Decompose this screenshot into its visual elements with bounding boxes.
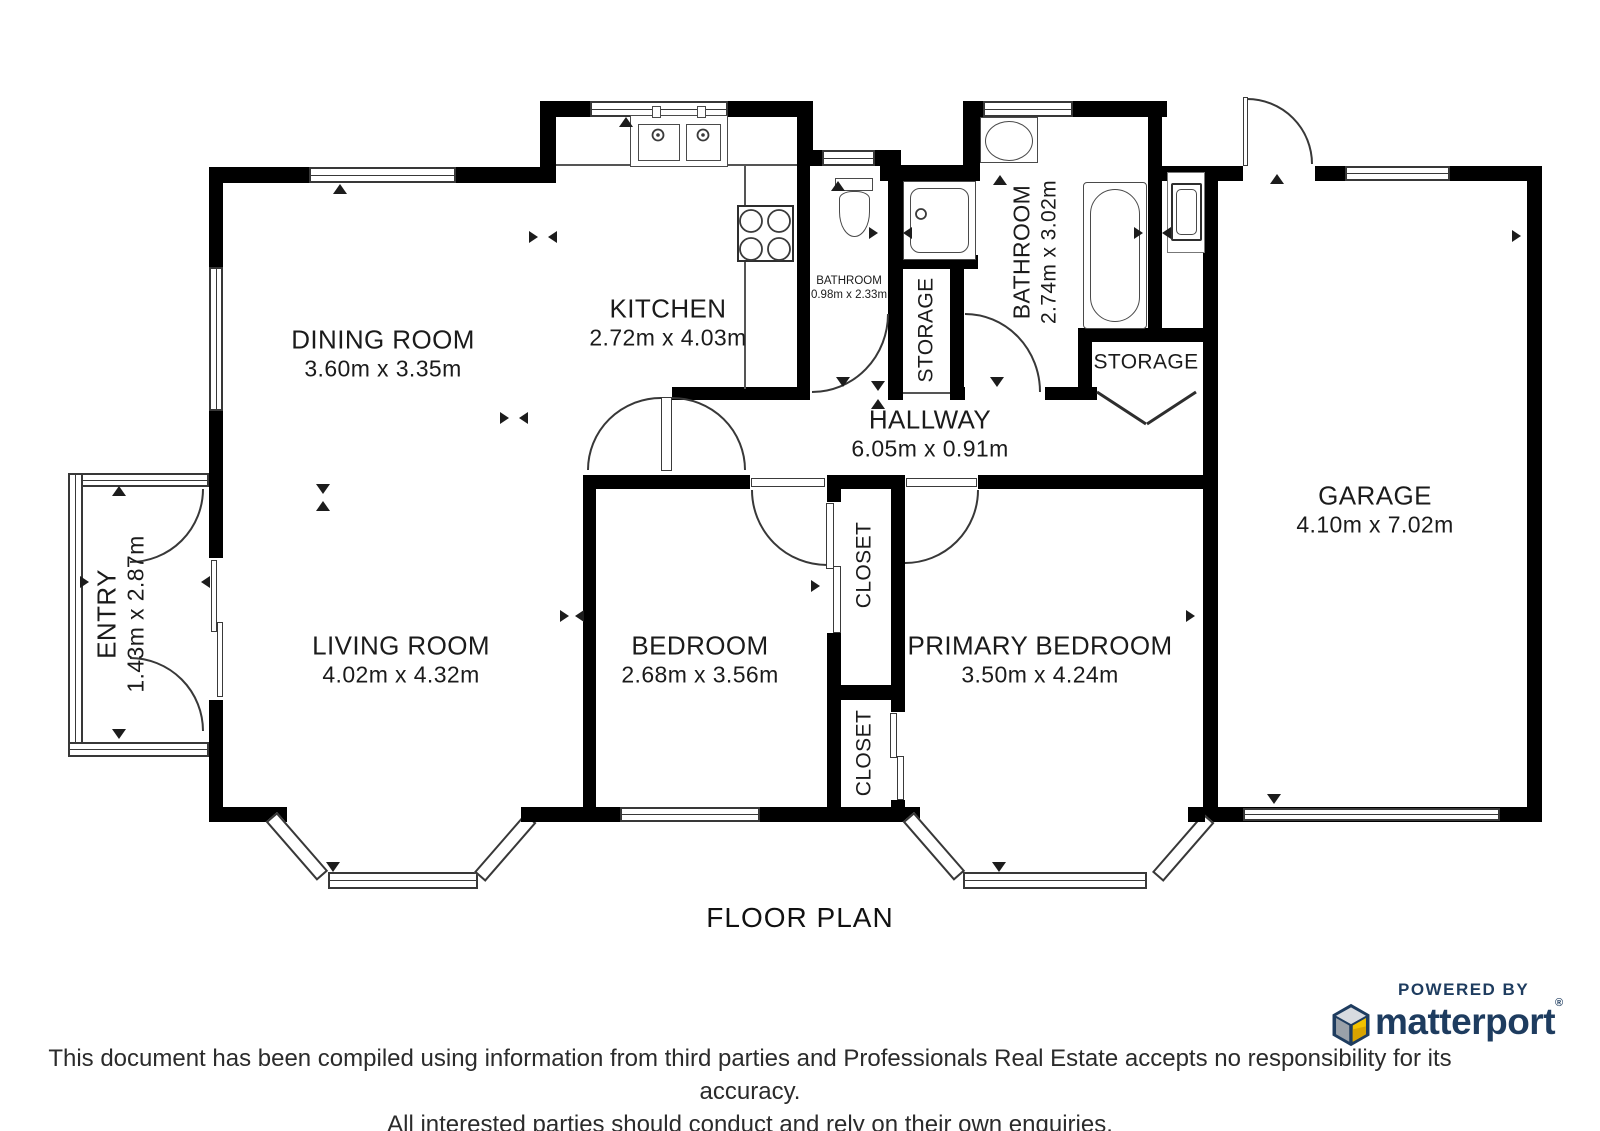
wall-segment bbox=[583, 475, 596, 807]
room-label-storage-1: STORAGE bbox=[913, 277, 938, 382]
wall-segment bbox=[1078, 328, 1092, 392]
door-leaf bbox=[661, 397, 672, 471]
marker-arrow bbox=[992, 862, 1006, 872]
marker-arrow bbox=[529, 231, 538, 243]
bathtub-inner bbox=[1090, 189, 1140, 322]
room-label-kitchen: KITCHEN 2.72m x 4.03m bbox=[589, 294, 746, 353]
room-label-bathroom-small: BATHROOM 0.98m x 2.33m bbox=[811, 275, 887, 303]
counter-edge bbox=[744, 166, 746, 389]
window bbox=[983, 101, 1073, 117]
marker-arrow bbox=[80, 576, 89, 588]
marker-arrow bbox=[326, 862, 340, 872]
door-arc bbox=[672, 398, 745, 470]
window bbox=[209, 267, 223, 411]
door-arc bbox=[905, 490, 978, 563]
wall-segment bbox=[209, 411, 223, 558]
wall-segment bbox=[583, 475, 1203, 489]
window bbox=[309, 167, 456, 183]
bay-window bbox=[903, 812, 965, 881]
marker-arrow bbox=[112, 486, 126, 496]
door-arc bbox=[1247, 99, 1312, 164]
marker-arrow bbox=[1267, 794, 1281, 804]
threshold-line bbox=[903, 392, 950, 394]
room-label-closet-1: CLOSET bbox=[851, 522, 876, 608]
entry-bay-window bbox=[68, 742, 209, 757]
marker-arrow bbox=[500, 412, 509, 424]
room-label-bedroom: BEDROOM 2.68m x 3.56m bbox=[621, 631, 778, 690]
wall-segment bbox=[888, 165, 903, 400]
window bbox=[1345, 166, 1450, 181]
marker-arrow bbox=[112, 729, 126, 739]
marker-arrow bbox=[619, 117, 633, 127]
appliance-inner bbox=[1176, 189, 1197, 235]
wall-segment bbox=[950, 268, 964, 400]
cooktop bbox=[737, 205, 794, 262]
wall-segment bbox=[1188, 807, 1205, 822]
garage-door bbox=[1243, 808, 1500, 821]
floor-plan: DINING ROOM 3.60m x 3.35m KITCHEN 2.72m … bbox=[0, 0, 1600, 1131]
bay-window bbox=[266, 812, 328, 881]
shower-tray bbox=[910, 188, 969, 253]
door-leaf bbox=[1243, 97, 1248, 166]
sink-basin bbox=[638, 124, 680, 161]
marker-arrow bbox=[1162, 227, 1171, 239]
door-arc bbox=[752, 490, 827, 565]
marker-arrow bbox=[1134, 227, 1143, 239]
wall-segment bbox=[209, 700, 223, 822]
marker-arrow bbox=[519, 412, 528, 424]
bay-window bbox=[963, 872, 1147, 889]
room-label-closet-2: CLOSET bbox=[851, 710, 876, 796]
door-opening bbox=[1097, 387, 1203, 400]
wall-segment bbox=[1148, 101, 1162, 342]
room-label-dining: DINING ROOM 3.60m x 3.35m bbox=[291, 325, 475, 384]
marker-arrow bbox=[575, 610, 584, 622]
marker-arrow bbox=[836, 377, 850, 387]
sliding-door-panel bbox=[890, 713, 897, 758]
wall-segment bbox=[1203, 166, 1218, 822]
window bbox=[620, 807, 760, 822]
door-arc bbox=[588, 398, 661, 470]
marker-arrow bbox=[831, 181, 845, 191]
marker-arrow bbox=[316, 501, 330, 511]
entry-bay-window bbox=[68, 473, 209, 487]
wall-segment bbox=[1527, 166, 1542, 822]
room-label-primary: PRIMARY BEDROOM 3.50m x 4.24m bbox=[907, 631, 1172, 690]
toilet-bowl-icon bbox=[839, 191, 870, 237]
sliding-door-panel bbox=[826, 503, 834, 569]
door-leaf bbox=[751, 478, 825, 487]
page-title: FLOOR PLAN bbox=[706, 902, 893, 934]
room-label-storage-2: STORAGE bbox=[1093, 349, 1198, 374]
marker-arrow bbox=[548, 231, 557, 243]
room-label-entry: ENTRY 1.43m x 2.87m bbox=[92, 535, 151, 692]
marker-arrow bbox=[560, 610, 569, 622]
wall-segment bbox=[797, 150, 810, 400]
bay-window bbox=[474, 813, 536, 882]
wall-segment bbox=[1078, 328, 1203, 342]
sliding-door-panel bbox=[217, 622, 223, 697]
room-label-bathroom-main: BATHROOM 2.74m x 3.02m bbox=[1009, 180, 1062, 324]
wall-segment bbox=[209, 167, 223, 267]
sliding-door-panel bbox=[833, 566, 841, 633]
room-label-hallway: HALLWAY 6.05m x 0.91m bbox=[851, 405, 1008, 464]
faucet-icon bbox=[697, 106, 706, 118]
marker-arrow bbox=[333, 184, 347, 194]
marker-arrow bbox=[990, 377, 1004, 387]
marker-arrow bbox=[869, 227, 878, 239]
room-label-garage: GARAGE 4.10m x 7.02m bbox=[1296, 481, 1453, 540]
matterport-wordmark: matterport® bbox=[1375, 997, 1563, 1043]
bay-window bbox=[1152, 813, 1214, 882]
sink-basin bbox=[686, 124, 721, 161]
room-label-living: LIVING ROOM 4.02m x 4.32m bbox=[312, 631, 490, 690]
vanity-sink-icon bbox=[985, 121, 1033, 161]
marker-arrow bbox=[993, 175, 1007, 185]
marker-arrow bbox=[316, 484, 330, 494]
marker-arrow bbox=[1270, 174, 1284, 184]
window bbox=[822, 150, 875, 166]
marker-arrow bbox=[201, 576, 210, 588]
entry-bay-window bbox=[68, 473, 83, 757]
door-leaf bbox=[906, 478, 977, 487]
marker-arrow bbox=[1186, 610, 1195, 622]
sliding-door-panel bbox=[897, 756, 904, 800]
bay-window bbox=[328, 872, 478, 889]
marker-arrow bbox=[903, 227, 912, 239]
marker-arrow bbox=[811, 580, 820, 592]
marker-arrow bbox=[871, 381, 885, 391]
disclaimer-text: This document has been compiled using in… bbox=[0, 1042, 1500, 1131]
marker-arrow bbox=[1512, 230, 1521, 242]
faucet-icon bbox=[652, 106, 661, 118]
door-opening bbox=[965, 387, 1045, 400]
